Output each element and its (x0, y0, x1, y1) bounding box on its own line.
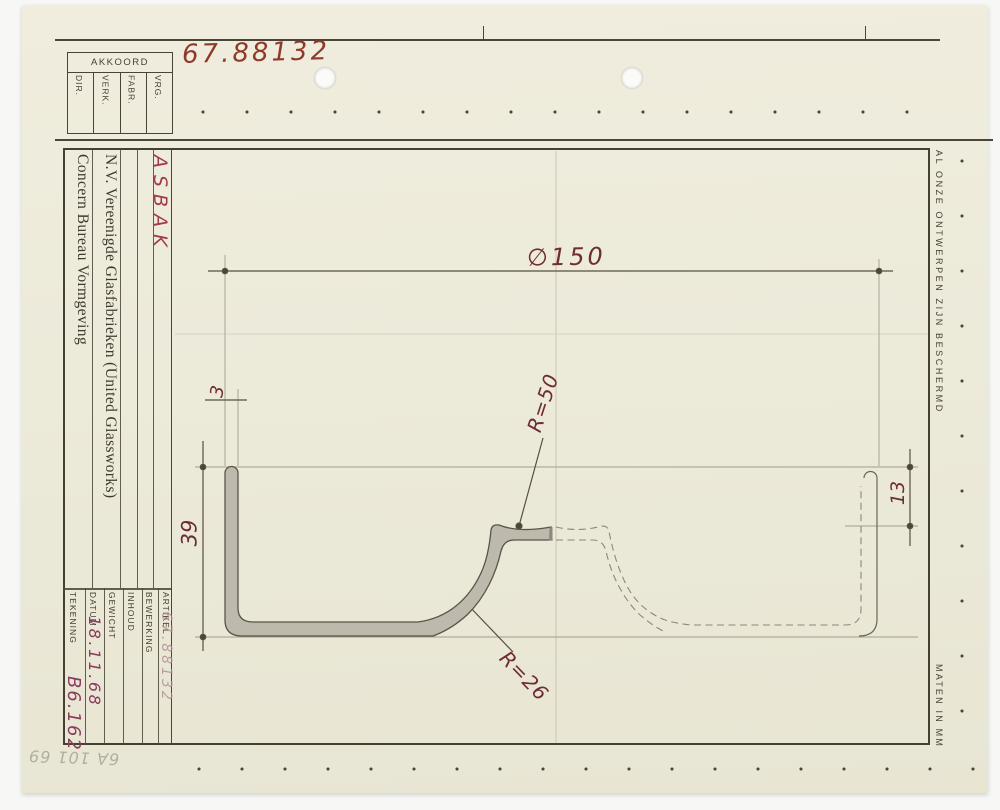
depth-label: 13 (887, 481, 909, 505)
company-name: N.V. Vereenigde Glasfabrieken (United Gl… (95, 154, 119, 498)
protection-notice: AL ONZE ONTWERPEN ZIJN BESCHERMD (934, 150, 944, 414)
field-value-artikel: 67.88132 (158, 612, 174, 703)
height-label: 39 (177, 520, 201, 547)
field-label-inhoud: INHOUD (126, 592, 136, 632)
field-label-gewicht: GEWICHT (107, 592, 117, 640)
perforation-dots-top (200, 109, 912, 115)
punch-hole-left (314, 67, 336, 89)
titleblock-line-3 (123, 588, 124, 745)
drawing-number-handwritten: 67.88132 (182, 36, 331, 70)
sidebar-line-2 (120, 148, 121, 588)
field-label-tekening: TEKENING (68, 592, 78, 644)
approval-col-vrg: VRG. (147, 73, 172, 133)
units-note: MATEN IN MM (934, 664, 944, 748)
pencil-note: 6A 101 69 (28, 746, 120, 768)
product-title: ASBAK (150, 155, 171, 254)
approval-header: AKKOORD (68, 53, 172, 73)
titleblock-top-rule (63, 588, 172, 590)
approval-col-fabr: FABR. (121, 73, 147, 133)
approval-col-verk: VERK. (94, 73, 120, 133)
field-value-datum: 18.11.68 (85, 616, 104, 707)
punch-hole-right (621, 67, 643, 89)
sidebar-line-3 (137, 148, 138, 588)
perforation-dots-bottom (196, 766, 988, 772)
top-tick-right (865, 26, 866, 40)
approval-table: AKKOORD DIR. VERK. FABR. VRG. (67, 52, 173, 134)
drawing-frame (63, 148, 930, 745)
field-label-bewerking: BEWERKING (144, 592, 154, 654)
diameter-label: ∅150 (527, 242, 606, 271)
field-value-tekening: B6.162 (63, 676, 84, 752)
titleblock-line-2 (104, 588, 105, 745)
approval-col-dir: DIR. (68, 73, 94, 133)
header-bottom-rule (55, 139, 993, 141)
scanned-technical-drawing: AKKOORD DIR. VERK. FABR. VRG. 67.88132 C… (0, 0, 1000, 810)
top-tick-left (483, 26, 484, 40)
perforation-dots-right (959, 158, 965, 752)
department-name: Concern Bureau Vormgeving (67, 154, 91, 345)
sidebar-line-1 (92, 148, 93, 588)
